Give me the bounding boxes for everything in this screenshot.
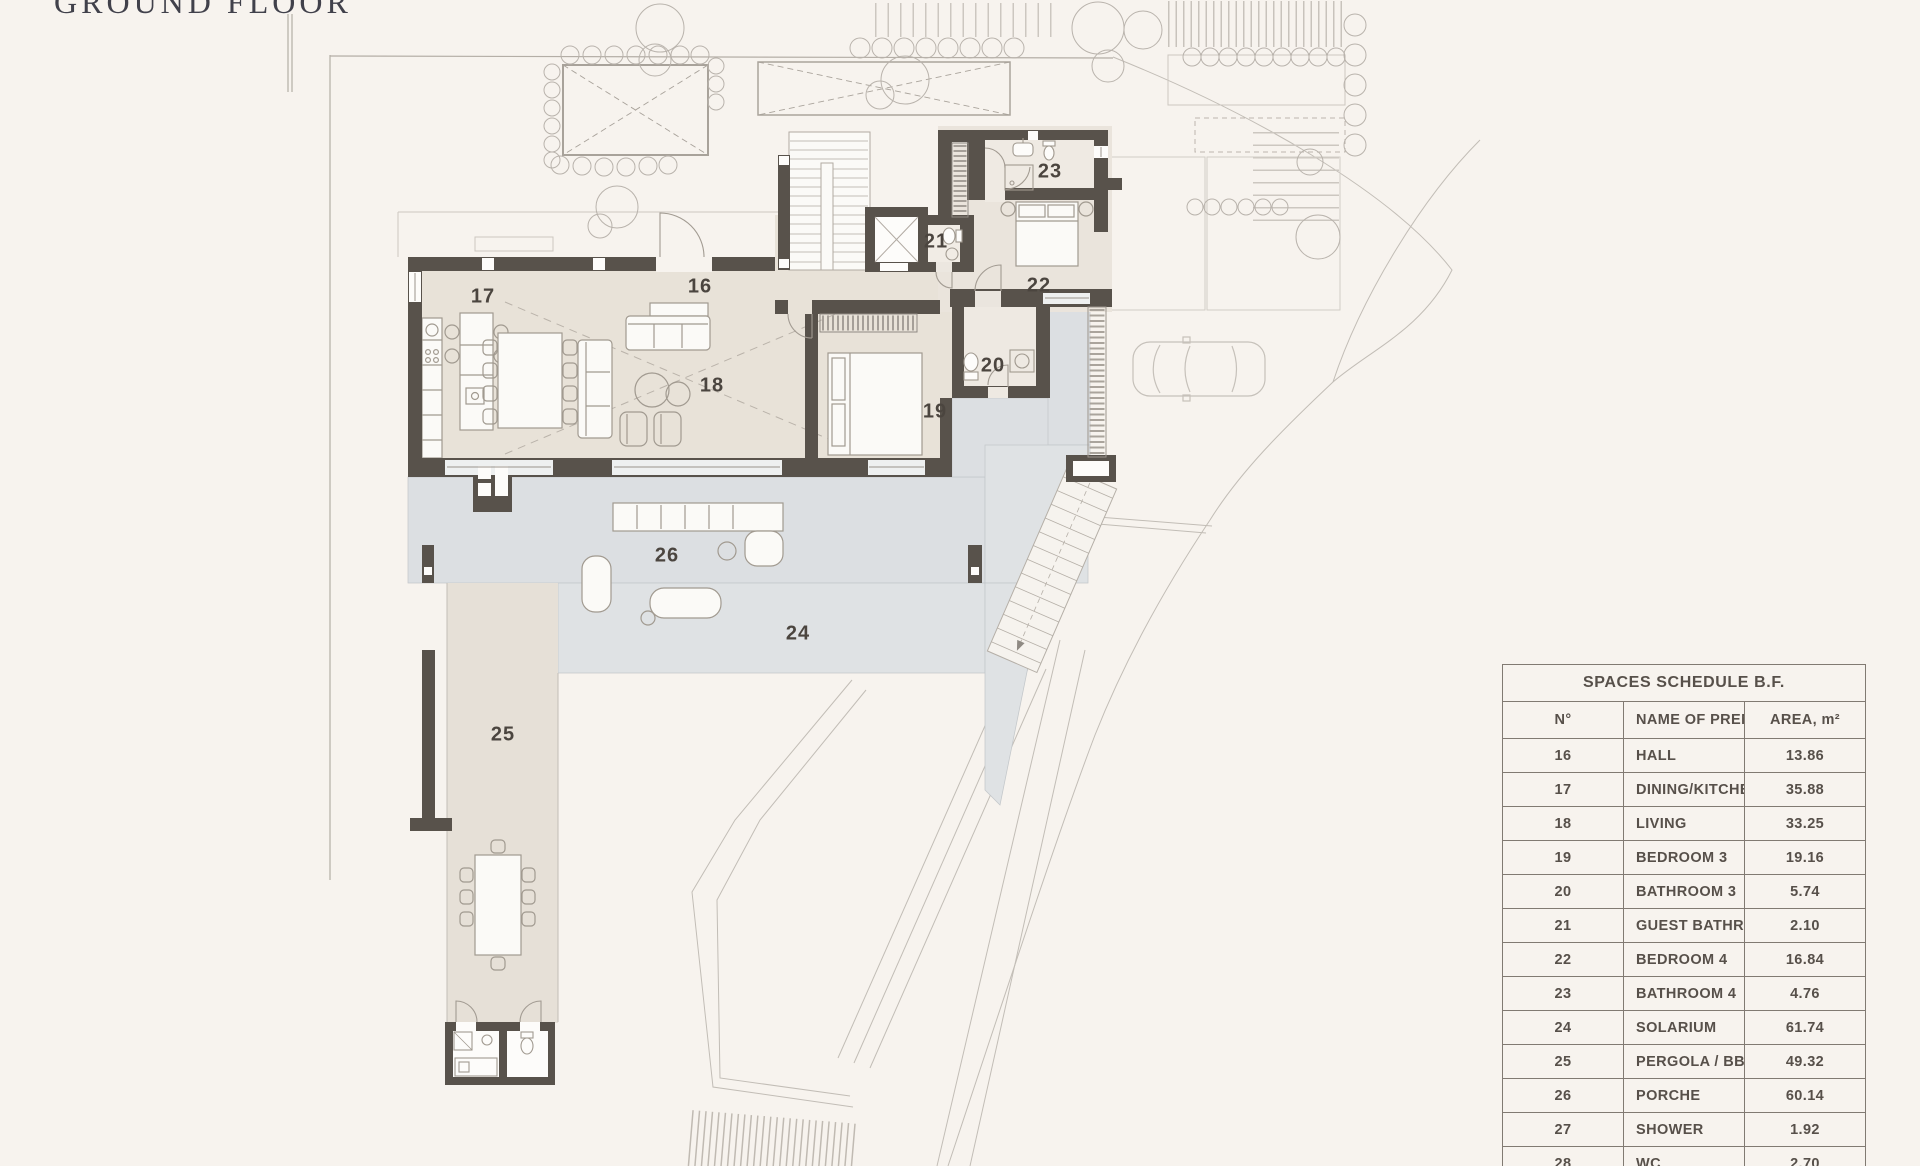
cell-number: 28 <box>1503 1147 1624 1166</box>
room-number-label: 22 <box>1027 275 1051 298</box>
cell-name: BEDROOM 3 <box>1624 841 1745 875</box>
interior-stairs <box>789 132 870 270</box>
cell-name: WC <box>1624 1147 1745 1166</box>
cell-area: 2.10 <box>1745 909 1866 943</box>
cell-number: 25 <box>1503 1045 1624 1079</box>
cell-number: 22 <box>1503 943 1624 977</box>
cell-area: 1.92 <box>1745 1113 1866 1147</box>
table-row: 26PORCHE60.14 <box>1503 1079 1866 1113</box>
cell-area: 60.14 <box>1745 1079 1866 1113</box>
cell-number: 24 <box>1503 1011 1624 1045</box>
floor-plan-sheet: GROUND FLOOR 1617181920212223242526 SPAC… <box>0 0 1920 1166</box>
room-number-label: 18 <box>700 375 724 398</box>
cell-number: 26 <box>1503 1079 1624 1113</box>
cell-number: 18 <box>1503 807 1624 841</box>
spaces-schedule-table: SPACES SCHEDULE B.F. N° NAME OF PREMISE … <box>1502 664 1866 1166</box>
room-number-label: 23 <box>1038 161 1062 184</box>
cell-area: 4.76 <box>1745 977 1866 1011</box>
room-number-label: 17 <box>471 286 495 309</box>
table-row: 23BATHROOM 44.76 <box>1503 977 1866 1011</box>
table-header-row: N° NAME OF PREMISE AREA, m² <box>1503 702 1866 739</box>
table-row: 28WC2.70 <box>1503 1147 1866 1166</box>
table-title: SPACES SCHEDULE B.F. <box>1503 665 1866 702</box>
cell-name: SOLARIUM <box>1624 1011 1745 1045</box>
cell-number: 20 <box>1503 875 1624 909</box>
cell-number: 17 <box>1503 773 1624 807</box>
bed-bedroom-3 <box>828 353 922 455</box>
column-header-area: AREA, m² <box>1745 702 1866 739</box>
cell-area: 49.32 <box>1745 1045 1866 1079</box>
table-row: 21GUEST BATHROOM2.10 <box>1503 909 1866 943</box>
table-row: 27SHOWER1.92 <box>1503 1113 1866 1147</box>
room-number-label: 26 <box>655 545 679 568</box>
cell-name: BEDROOM 4 <box>1624 943 1745 977</box>
cell-name: BATHROOM 3 <box>1624 875 1745 909</box>
cell-area: 33.25 <box>1745 807 1866 841</box>
cell-area: 16.84 <box>1745 943 1866 977</box>
cell-number: 16 <box>1503 739 1624 773</box>
kitchen-counter <box>422 318 442 458</box>
cell-number: 27 <box>1503 1113 1624 1147</box>
table-row: 19BEDROOM 319.16 <box>1503 841 1866 875</box>
page-title: GROUND FLOOR <box>54 0 352 21</box>
cell-name: PORCHE <box>1624 1079 1745 1113</box>
cell-name: SHOWER <box>1624 1113 1745 1147</box>
room-number-label: 25 <box>491 724 515 747</box>
cell-area: 19.16 <box>1745 841 1866 875</box>
table-row: 25PERGOLA / BBQ49.32 <box>1503 1045 1866 1079</box>
cell-name: HALL <box>1624 739 1745 773</box>
cell-number: 19 <box>1503 841 1624 875</box>
room-number-label: 19 <box>923 401 947 424</box>
room-number-label: 21 <box>924 231 948 254</box>
cell-area: 61.74 <box>1745 1011 1866 1045</box>
cell-area: 13.86 <box>1745 739 1866 773</box>
table-row: 16HALL13.86 <box>1503 739 1866 773</box>
column-header-name: NAME OF PREMISE <box>1624 702 1745 739</box>
cell-area: 5.74 <box>1745 875 1866 909</box>
table-row: 20BATHROOM 35.74 <box>1503 875 1866 909</box>
table-title-row: SPACES SCHEDULE B.F. <box>1503 665 1866 702</box>
table-row: 22BEDROOM 416.84 <box>1503 943 1866 977</box>
cell-name: DINING/KITCHEN <box>1624 773 1745 807</box>
table-row: 18LIVING33.25 <box>1503 807 1866 841</box>
cell-name: GUEST BATHROOM <box>1624 909 1745 943</box>
cell-area: 2.70 <box>1745 1147 1866 1166</box>
room-number-label: 20 <box>981 355 1005 378</box>
room-number-label: 24 <box>786 623 810 646</box>
cell-number: 21 <box>1503 909 1624 943</box>
column-header-number: N° <box>1503 702 1624 739</box>
cell-name: PERGOLA / BBQ <box>1624 1045 1745 1079</box>
cell-number: 23 <box>1503 977 1624 1011</box>
cell-name: BATHROOM 4 <box>1624 977 1745 1011</box>
table-row: 17DINING/KITCHEN35.88 <box>1503 773 1866 807</box>
room-number-label: 16 <box>688 276 712 299</box>
table-row: 24SOLARIUM61.74 <box>1503 1011 1866 1045</box>
cell-name: LIVING <box>1624 807 1745 841</box>
cell-area: 35.88 <box>1745 773 1866 807</box>
